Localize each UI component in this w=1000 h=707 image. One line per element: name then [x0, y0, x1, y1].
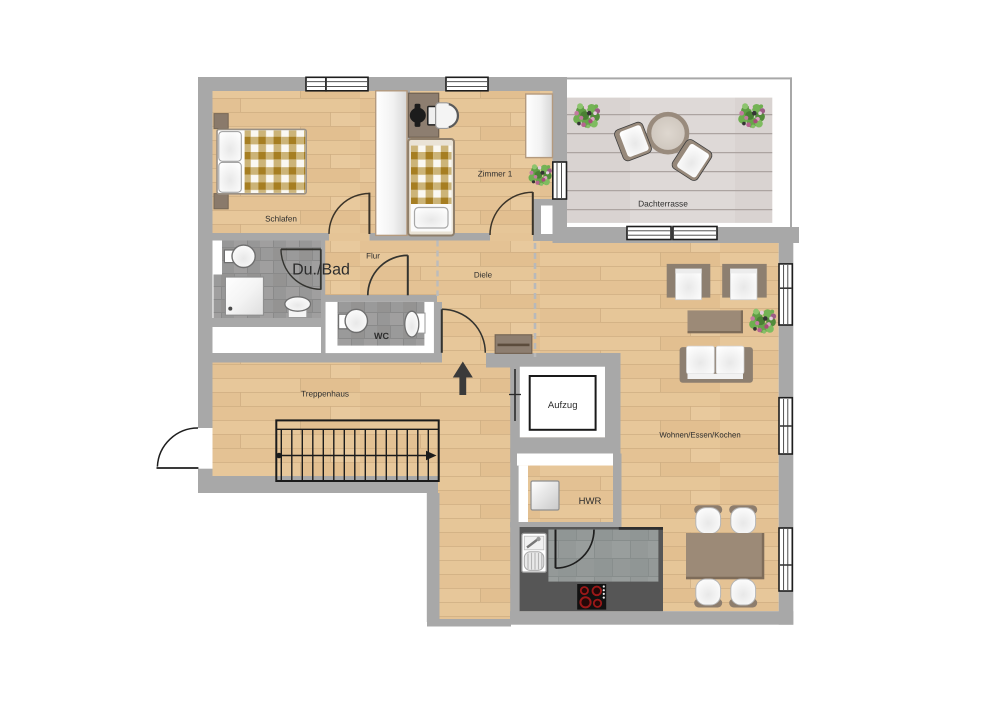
svg-text:Aufzug: Aufzug [548, 400, 578, 411]
svg-text:Dachterrasse: Dachterrasse [638, 199, 688, 209]
svg-text:Schlafen: Schlafen [265, 215, 297, 224]
svg-text:WC: WC [374, 331, 389, 341]
svg-text:Flur: Flur [366, 252, 380, 261]
svg-text:Zimmer 1: Zimmer 1 [478, 170, 513, 179]
svg-text:Du./Bad: Du./Bad [292, 262, 350, 279]
svg-text:Diele: Diele [474, 271, 493, 280]
svg-text:HWR: HWR [579, 496, 602, 507]
svg-text:Wohnen/Essen/Kochen: Wohnen/Essen/Kochen [659, 431, 740, 440]
svg-text:Treppenhaus: Treppenhaus [301, 390, 349, 399]
